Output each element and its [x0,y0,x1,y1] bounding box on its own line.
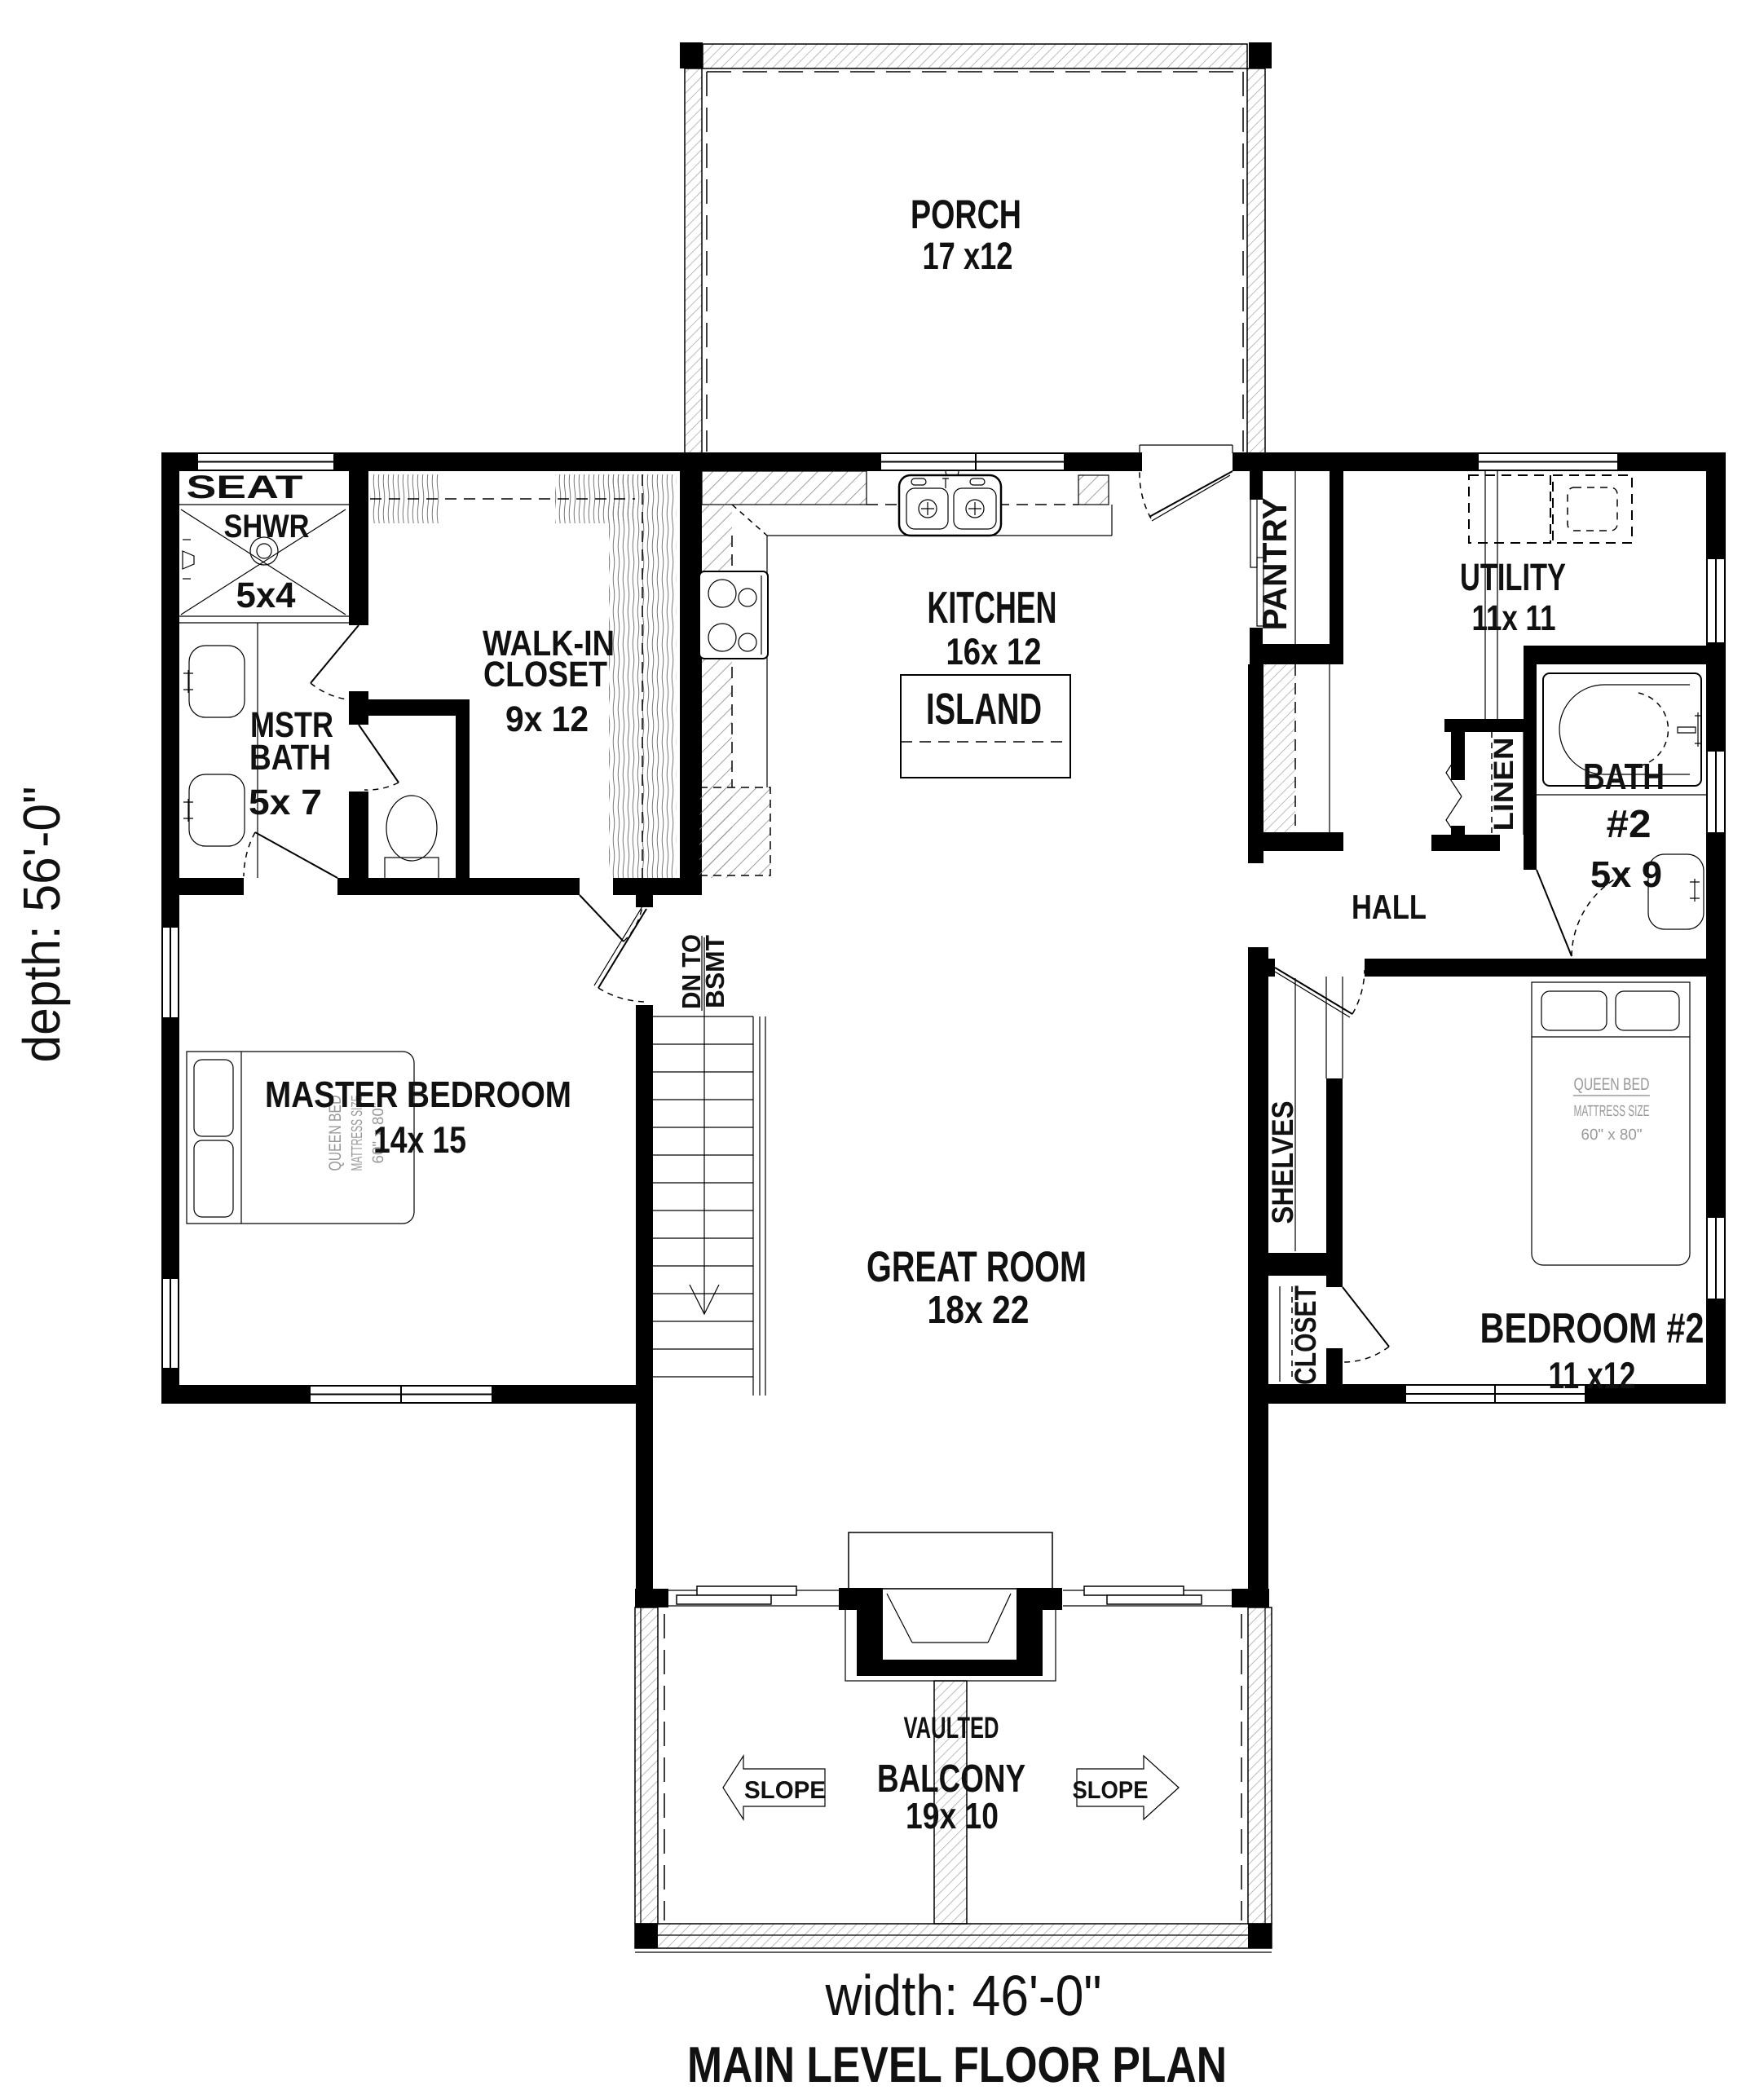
svg-text:KITCHEN: KITCHEN [928,582,1057,633]
svg-text:SEAT: SEAT [187,470,303,505]
svg-text:SLOPE: SLOPE [1073,1777,1149,1804]
svg-text:GREAT ROOM: GREAT ROOM [867,1243,1087,1291]
svg-text:width: 46'-0": width: 46'-0" [825,1964,1102,2027]
svg-text:11 x12: 11 x12 [1549,1354,1636,1396]
svg-text:17 x12: 17 x12 [923,234,1013,277]
svg-text:UTILITY: UTILITY [1460,555,1566,598]
svg-text:LINEN: LINEN [1488,738,1519,831]
svg-text:BATH: BATH [1583,756,1665,797]
svg-text:ISLAND: ISLAND [926,685,1042,734]
svg-text:QUEEN BED: QUEEN BED [1574,1075,1650,1094]
svg-text:VAULTED: VAULTED [904,1711,999,1744]
svg-text:depth: 56'-0": depth: 56'-0" [12,787,71,1063]
svg-text:CLOSET: CLOSET [1289,1285,1322,1385]
svg-text:5x 7: 5x 7 [249,783,322,822]
svg-text:19x 10: 19x 10 [906,1795,999,1837]
svg-text:PORCH: PORCH [911,192,1021,237]
svg-text:9x 12: 9x 12 [505,699,589,739]
svg-text:18x 22: 18x 22 [928,1289,1030,1332]
svg-text:CLOSET: CLOSET [483,655,607,695]
svg-text:MATTRESS SIZE: MATTRESS SIZE [1574,1103,1650,1120]
svg-text:BATH: BATH [249,738,331,778]
svg-text:BSMT: BSMT [700,935,730,1008]
svg-text:SHELVES: SHELVES [1266,1101,1299,1224]
svg-text:HALL: HALL [1352,888,1427,926]
svg-text:5x4: 5x4 [236,575,297,615]
svg-text:SLOPE: SLOPE [744,1777,826,1804]
svg-text:BEDROOM #2: BEDROOM #2 [1480,1305,1704,1352]
svg-text:#2: #2 [1607,803,1652,846]
svg-text:16x 12: 16x 12 [946,630,1042,672]
svg-text:14x 15: 14x 15 [373,1118,466,1161]
svg-text:5x 9: 5x 9 [1590,853,1662,895]
svg-text:MAIN LEVEL FLOOR PLAN: MAIN LEVEL FLOOR PLAN [687,2037,1227,2093]
svg-text:11x 11: 11x 11 [1472,598,1556,638]
svg-text:SHWR: SHWR [224,509,310,545]
svg-text:MASTER BEDROOM: MASTER BEDROOM [265,1074,571,1115]
svg-text:PANTRY: PANTRY [1255,498,1294,631]
svg-text:60" x 80": 60" x 80" [1581,1127,1643,1144]
